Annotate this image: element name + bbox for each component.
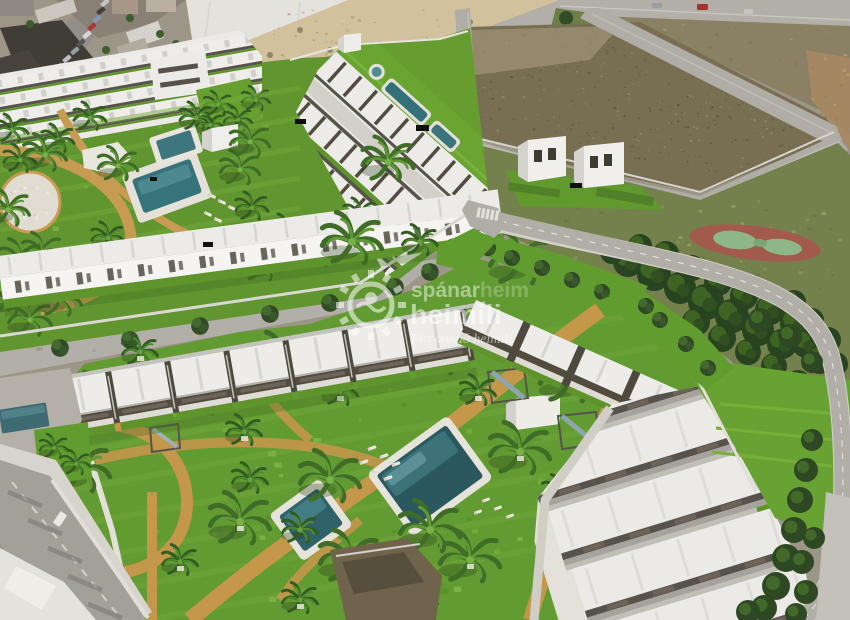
svg-text:Þitt annað heimili: Þitt annað heimili (410, 332, 512, 347)
svg-text:heimili: heimili (410, 299, 502, 330)
